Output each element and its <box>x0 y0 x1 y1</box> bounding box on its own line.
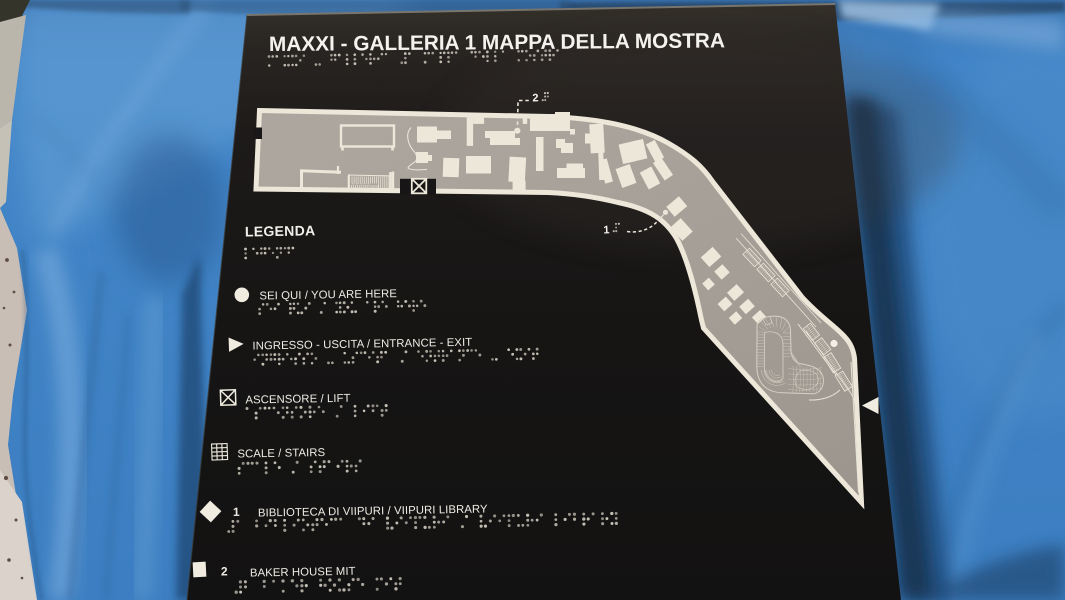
svg-text:2: 2 <box>532 92 539 104</box>
svg-text:LEGENDA: LEGENDA <box>245 222 316 239</box>
svg-text:MAXXI - GALLERIA 1 MAPPA DELLA: MAXXI - GALLERIA 1 MAPPA DELLA MOSTRA <box>269 29 725 56</box>
svg-text:2: 2 <box>221 564 228 578</box>
svg-text:ASCENSORE / LIFT: ASCENSORE / LIFT <box>245 393 350 407</box>
svg-text:1: 1 <box>233 505 240 519</box>
svg-text:BAKER HOUSE MIT: BAKER HOUSE MIT <box>250 566 356 580</box>
svg-text:SCALE / STAIRS: SCALE / STAIRS <box>237 447 325 461</box>
svg-text:SEI QUI / YOU ARE HERE: SEI QUI / YOU ARE HERE <box>259 288 397 302</box>
svg-text:1: 1 <box>603 224 610 236</box>
